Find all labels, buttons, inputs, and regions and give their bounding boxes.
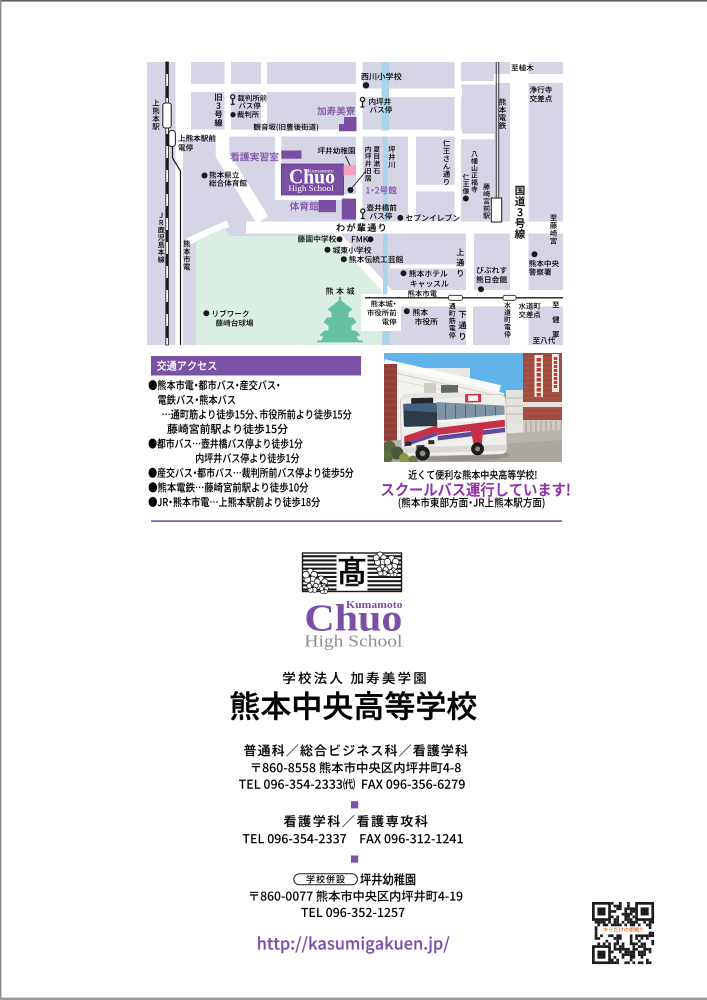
svg-text:Kumamoto: Kumamoto	[308, 169, 334, 175]
svg-text:High School: High School	[304, 632, 402, 651]
svg-text:High School: High School	[288, 184, 334, 193]
